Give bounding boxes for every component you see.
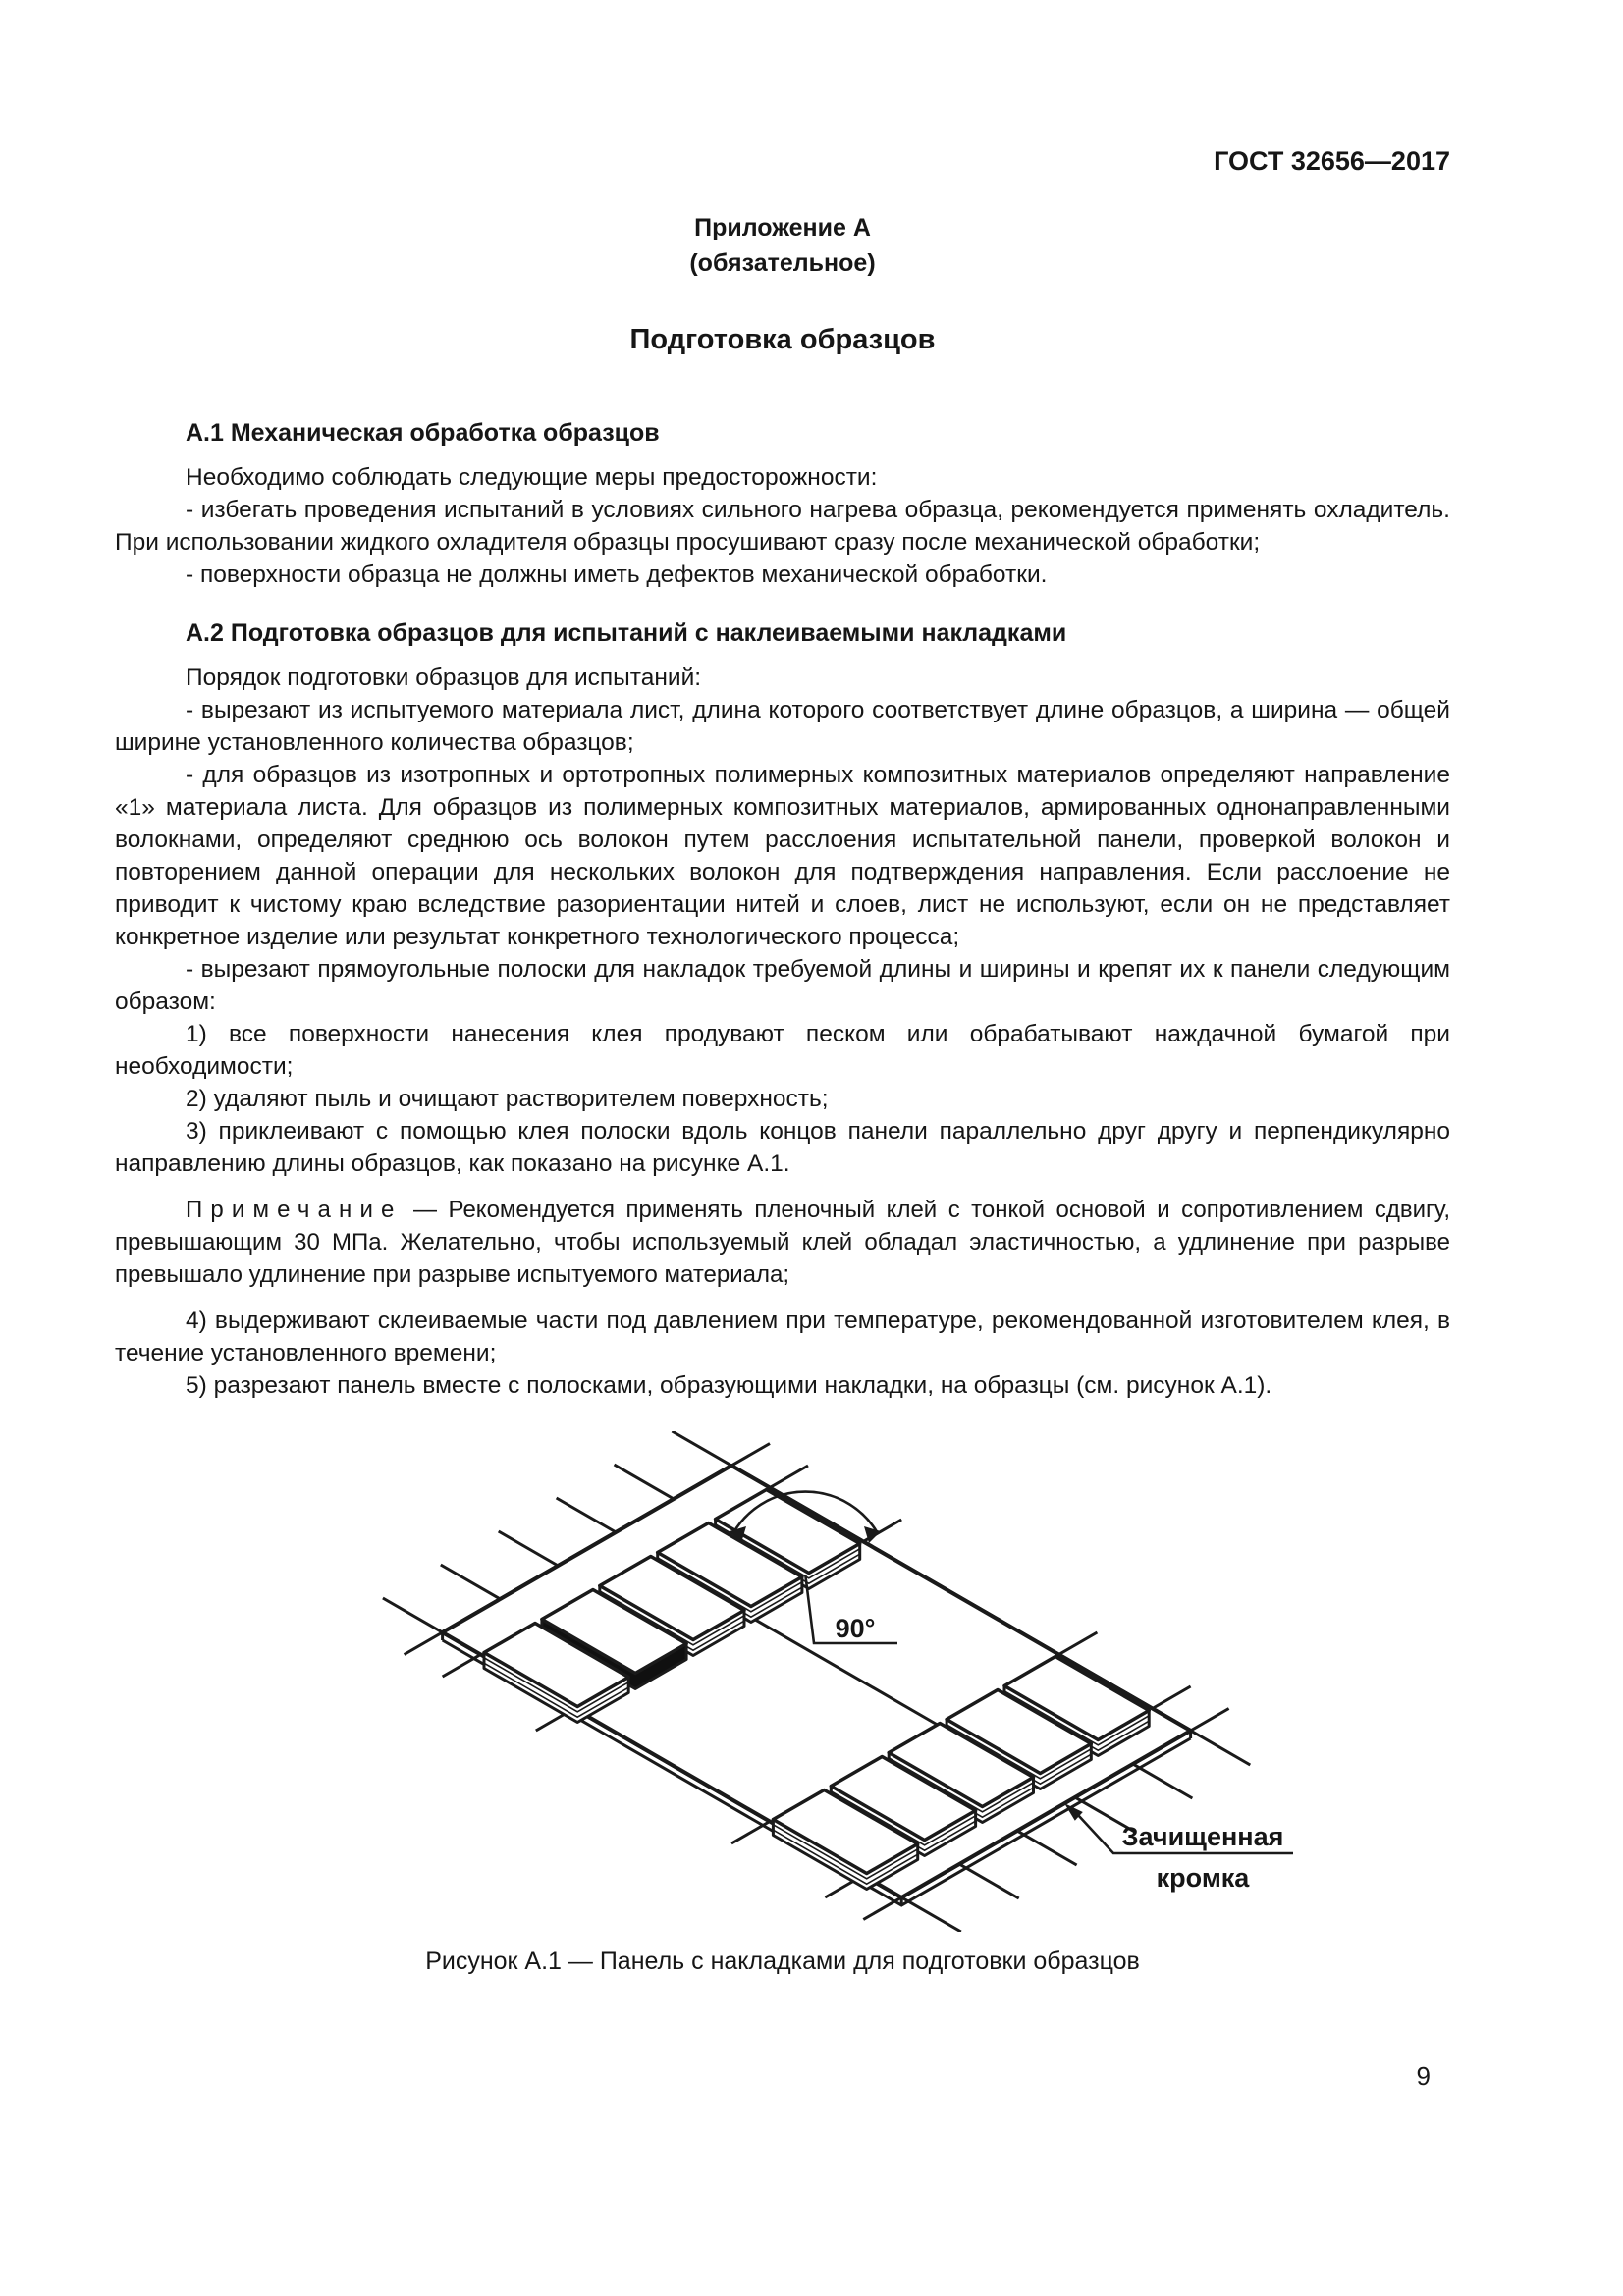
content: ГОСТ 32656—2017 Приложение А (обязательн…: [0, 0, 1623, 1977]
figure-caption: Рисунок А.1 — Панель с накладками для по…: [115, 1946, 1450, 1977]
paragraph-a1-1: Необходимо соблюдать следующие меры пред…: [115, 461, 1450, 494]
page: ГОСТ 32656—2017 Приложение А (обязательн…: [0, 0, 1623, 2296]
figure-a1: 90° Зачищенная кромка: [365, 1431, 1337, 1932]
numbered-item-3: 3) приклеивают с помощью клея полоски вд…: [115, 1115, 1450, 1180]
standard-number: ГОСТ 32656—2017: [1214, 146, 1450, 176]
page-number: 9: [1417, 2061, 1431, 2092]
list-item-a2-strips: - вырезают прямоугольные полоски для нак…: [115, 953, 1450, 1018]
section-a2-heading: А.2 Подготовка образцов для испытаний с …: [115, 616, 1450, 650]
numbered-item-4: 4) выдерживают склеиваемые части под дав…: [115, 1305, 1450, 1369]
list-item-a1-cooling: - избегать проведения испытаний в услови…: [115, 494, 1450, 559]
angle-value-label: 90°: [836, 1614, 876, 1643]
list-item-a2-sheet: - вырезают из испытуемого материала лист…: [115, 694, 1450, 759]
appendix-label: Приложение А: [115, 210, 1450, 245]
panel-drawing: 90° Зачищенная кромка: [365, 1431, 1337, 1932]
edge-callout: Зачищенная кромка: [1064, 1803, 1293, 1893]
note-paragraph: Примечание — Рекомендуется применять пле…: [115, 1194, 1450, 1291]
numbered-item-2: 2) удаляют пыль и очищают растворителем …: [115, 1083, 1450, 1115]
numbered-item-1: 1) все поверхности нанесения клея продув…: [115, 1018, 1450, 1083]
page-title: Подготовка образцов: [115, 320, 1450, 359]
edge-label-line1: Зачищенная: [1122, 1822, 1284, 1851]
numbered-item-5: 5) разрезают панель вместе с полосками, …: [115, 1369, 1450, 1402]
list-item-a1-surface: - поверхности образца не должны иметь де…: [115, 559, 1450, 591]
section-a1-heading: А.1 Механическая обработка образцов: [115, 416, 1450, 450]
note-label: Примечание: [186, 1197, 403, 1223]
appendix-status: (обязательное): [115, 245, 1450, 281]
paragraph-a2-order: Порядок подготовки образцов для испытани…: [115, 662, 1450, 694]
list-item-a2-direction: - для образцов из изотропных и ортотропн…: [115, 759, 1450, 953]
edge-label-line2: кромка: [1157, 1863, 1251, 1893]
document-header: ГОСТ 32656—2017: [115, 145, 1450, 177]
